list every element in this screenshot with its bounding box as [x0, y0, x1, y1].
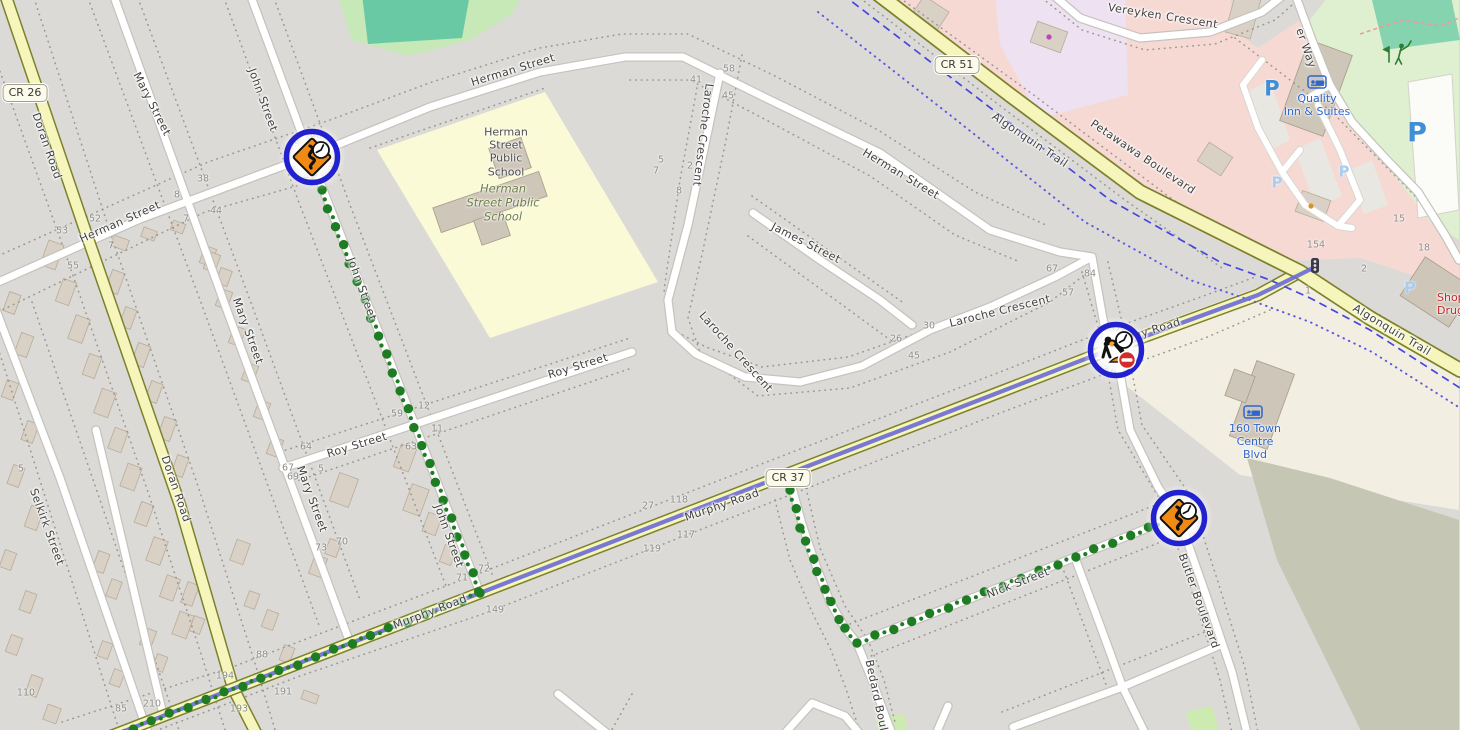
route-dot	[848, 634, 852, 638]
route-dot	[460, 543, 464, 547]
route-dot	[417, 441, 426, 450]
route-dot	[820, 585, 829, 594]
route-dot	[790, 498, 794, 502]
route-dot	[792, 504, 801, 513]
route-dot	[1126, 531, 1135, 540]
route-dot	[466, 562, 470, 566]
route-dot	[361, 295, 370, 304]
parcel-dotted-line	[138, 0, 360, 600]
route-dot	[165, 708, 174, 717]
route-dot	[1089, 544, 1098, 553]
building	[325, 538, 342, 557]
route-dot	[201, 695, 210, 704]
route-dot	[457, 596, 466, 605]
route-dot	[944, 603, 953, 612]
route-dot	[331, 215, 335, 219]
parcel-dotted-line	[610, 694, 632, 730]
route-dot	[840, 623, 849, 632]
building	[82, 353, 102, 378]
route-dot	[140, 722, 144, 726]
parcel-dotted-line	[866, 540, 1166, 658]
parcel-dotted-line	[806, 488, 896, 726]
building	[3, 292, 21, 315]
route-dot	[249, 679, 253, 683]
route-dot	[352, 270, 356, 274]
route-dot	[366, 314, 375, 323]
route-dot	[1064, 557, 1068, 561]
route-dot	[425, 459, 434, 468]
building	[141, 227, 158, 241]
route-dot	[344, 259, 353, 268]
clock-icon	[1180, 503, 1196, 519]
route-dot	[395, 386, 404, 395]
route-dot	[820, 578, 824, 582]
route-dot	[1029, 574, 1033, 578]
building	[24, 505, 44, 530]
building	[106, 579, 122, 600]
route-dot	[955, 601, 959, 605]
route-dot	[1047, 566, 1051, 570]
building	[261, 609, 278, 630]
route-dot	[268, 674, 272, 678]
route-dot	[409, 423, 418, 432]
parcel-dotted-line	[288, 368, 632, 484]
route-dot	[430, 471, 434, 475]
street	[753, 213, 912, 325]
route-dot	[826, 597, 835, 606]
route-dot	[414, 615, 418, 619]
route-dot	[396, 379, 400, 383]
route-dot	[852, 638, 861, 647]
route-dot	[796, 516, 800, 520]
route-dot	[937, 609, 941, 613]
route-dot	[382, 349, 391, 358]
route-dot	[834, 615, 843, 624]
route-dot	[882, 630, 886, 634]
route-dot	[475, 588, 484, 597]
building	[329, 472, 358, 507]
route-dot	[366, 631, 375, 640]
map-base-layer	[0, 0, 1460, 730]
building	[120, 463, 142, 491]
route-dot	[323, 652, 327, 656]
route-dot	[1101, 544, 1105, 548]
route-dot	[177, 708, 181, 712]
route-dot	[159, 716, 163, 720]
street	[790, 480, 857, 643]
building	[1, 379, 18, 400]
route-dot	[1138, 531, 1142, 535]
marker-herman-john[interactable]	[277, 122, 347, 192]
route-dot	[238, 682, 247, 691]
route-dot	[907, 617, 916, 626]
route-dot	[801, 530, 805, 534]
route-dot	[460, 550, 469, 559]
building	[0, 549, 17, 570]
route-dot	[925, 609, 934, 618]
route-dot	[1071, 552, 1080, 561]
building	[97, 641, 113, 660]
street	[668, 73, 1092, 382]
route-dot	[348, 639, 357, 648]
route-dot	[183, 703, 192, 712]
marker-nick-butler[interactable]	[1144, 483, 1214, 553]
route-dot	[339, 240, 348, 249]
route-dot	[323, 197, 327, 201]
route-dot	[1119, 536, 1123, 540]
route-dot	[409, 416, 413, 420]
building	[94, 388, 117, 418]
building	[134, 501, 154, 526]
route-dot	[374, 325, 378, 329]
route-dot	[256, 674, 265, 683]
street	[558, 694, 608, 730]
route-dot	[785, 485, 794, 494]
traffic-signal-icon	[1311, 258, 1319, 273]
route-dot	[1034, 566, 1043, 575]
building	[244, 591, 260, 610]
route-dot	[379, 343, 383, 347]
route-dot	[433, 610, 437, 614]
route-dot	[444, 508, 448, 512]
route-dot	[336, 234, 340, 238]
route-dot	[147, 716, 156, 725]
parcel-dotted-line	[0, 185, 300, 312]
route-dot	[1017, 574, 1026, 583]
route-dot	[452, 526, 456, 530]
parcel-dotted-line	[274, 0, 492, 574]
parcel-dotted-line	[775, 500, 858, 726]
route-dot	[438, 602, 447, 611]
route-dot	[974, 595, 978, 599]
building	[43, 704, 62, 724]
route-dot	[992, 587, 996, 591]
route-dot	[1053, 560, 1062, 569]
street	[113, 0, 350, 643]
building	[5, 634, 22, 655]
street-casing	[668, 73, 1092, 382]
route-dot	[1083, 552, 1087, 556]
route-dot	[833, 608, 837, 612]
no-entry-icon	[1119, 352, 1136, 369]
building	[108, 427, 129, 452]
route-dot	[431, 478, 440, 487]
route-dot	[812, 560, 816, 564]
route-dot	[468, 594, 472, 598]
route-dot	[439, 489, 443, 493]
green-patch-2	[1186, 706, 1220, 730]
route-dot	[231, 687, 235, 691]
building	[230, 539, 251, 564]
building	[19, 591, 37, 614]
map-canvas[interactable]: Mary StreetJohn StreetHerman StreetDoran…	[0, 0, 1460, 730]
clock-icon	[313, 142, 329, 158]
route-dot	[344, 252, 348, 256]
building	[25, 675, 43, 698]
route-dot	[358, 289, 362, 293]
street	[0, 310, 148, 730]
marker-murphy-butler[interactable]	[1081, 315, 1151, 385]
route-dot	[962, 595, 971, 604]
route-dot	[331, 222, 340, 231]
route-dot	[812, 567, 821, 576]
building	[301, 690, 319, 704]
route-dot	[213, 695, 217, 699]
route-dot	[423, 453, 427, 457]
route-dot	[999, 582, 1008, 591]
building	[55, 278, 76, 305]
route-dot	[452, 532, 461, 541]
route-dot	[870, 630, 879, 639]
building	[439, 544, 456, 565]
route-dot	[387, 361, 391, 365]
route-dot	[195, 700, 199, 704]
route-dot	[806, 548, 810, 552]
building	[68, 315, 91, 344]
route-dot	[323, 204, 332, 213]
route-dot	[417, 434, 421, 438]
route-dot	[1108, 539, 1117, 548]
route-dot	[274, 666, 283, 675]
route-dot	[473, 580, 477, 584]
pitch-area-2	[362, 0, 470, 44]
poi-dot-orange	[1308, 203, 1313, 208]
route-dot	[401, 398, 405, 402]
route-dot	[980, 587, 989, 596]
building	[7, 465, 25, 488]
route-dot	[889, 625, 898, 634]
route-dot	[219, 687, 228, 696]
route-dot	[919, 617, 923, 621]
school-grounds	[377, 92, 658, 338]
route-dot	[384, 623, 393, 632]
street	[283, 352, 632, 468]
poi-dot-magenta	[1046, 34, 1051, 39]
route-dot	[286, 665, 290, 669]
route-dot	[439, 496, 448, 505]
route-dot	[366, 307, 370, 311]
route-dot	[329, 644, 338, 653]
route-dot	[900, 622, 904, 626]
route-dot	[293, 660, 302, 669]
clock-icon	[1116, 332, 1132, 348]
route-dot	[311, 652, 320, 661]
route-dot	[341, 644, 345, 648]
parcel-dotted-line	[664, 88, 1030, 367]
route-dot	[447, 513, 456, 522]
route-dot	[304, 658, 308, 662]
route-dot	[1010, 579, 1014, 583]
building	[159, 575, 180, 601]
route-dot	[864, 638, 868, 642]
route-dot	[352, 277, 361, 286]
route-dot	[801, 536, 810, 545]
route-dot	[469, 568, 478, 577]
route-dot	[396, 623, 400, 627]
route-dot	[404, 404, 413, 413]
parcel-dotted-line	[752, 196, 905, 304]
route-dot	[451, 602, 455, 606]
route-dot	[388, 368, 397, 377]
route-dot	[378, 631, 382, 635]
route-dot	[421, 610, 430, 619]
route-dot	[359, 636, 363, 640]
building	[403, 484, 429, 516]
route-dot	[403, 618, 412, 627]
parcel-dotted-line	[280, 338, 630, 452]
parcel-dotted-line	[850, 504, 1158, 624]
building	[146, 537, 169, 566]
route-dot	[374, 331, 383, 340]
